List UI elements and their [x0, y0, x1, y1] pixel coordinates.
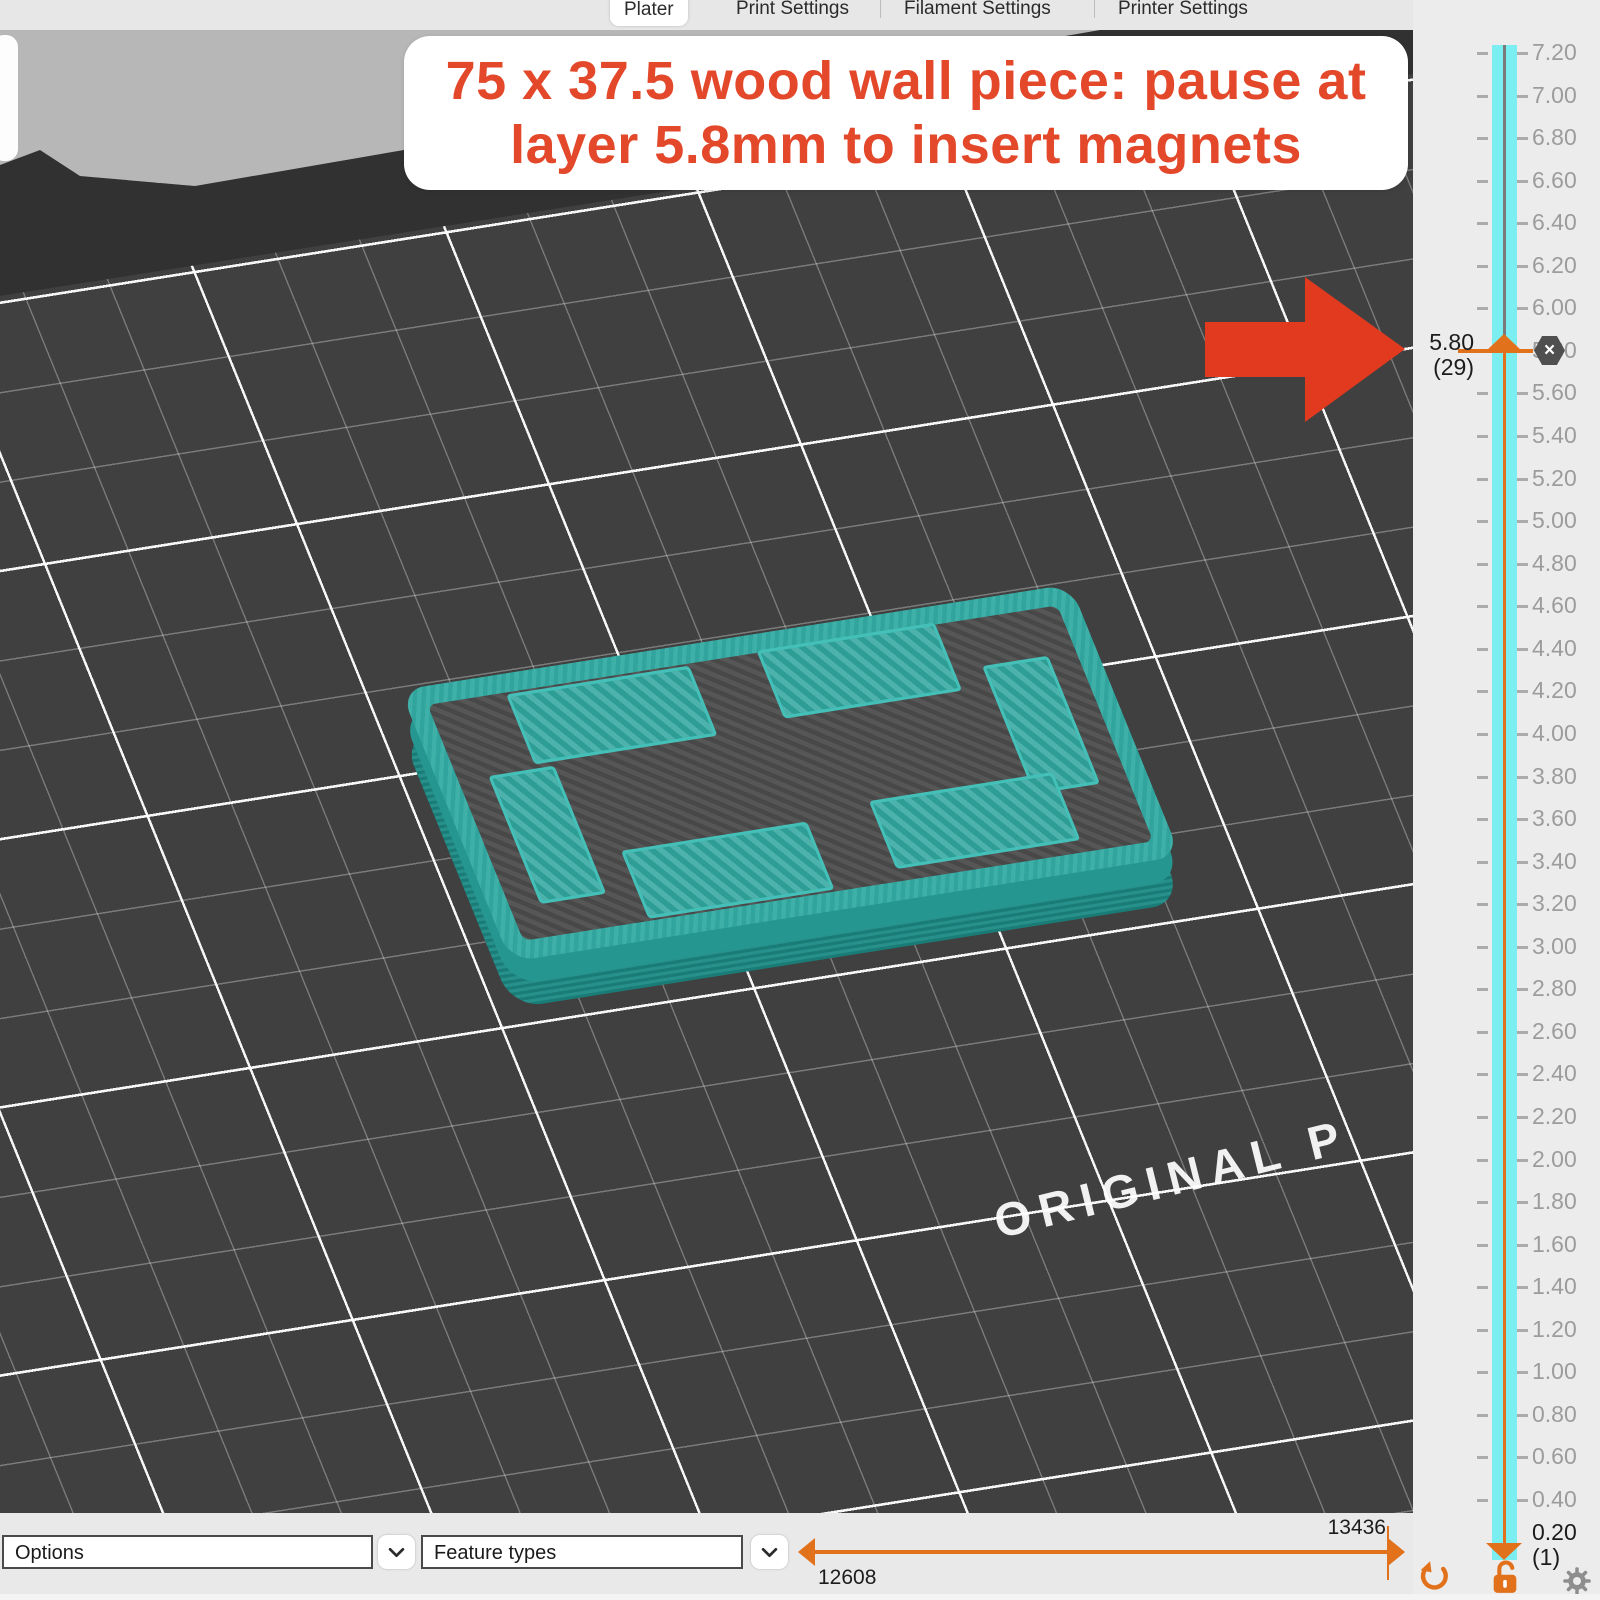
- lower-handle-layer-index: (1): [1532, 1544, 1560, 1571]
- settings-tabbar: Plater Print Settings Filament Settings …: [0, 0, 1413, 30]
- move-slider-position-tick: [1387, 1526, 1389, 1580]
- tab-printer-settings[interactable]: Printer Settings: [1104, 0, 1262, 26]
- annotation-line-2: layer 5.8mm to insert magnets: [404, 113, 1408, 177]
- annotation-arrow-icon: [1205, 277, 1405, 423]
- left-toolbar-fragment: [0, 35, 18, 161]
- layer-slider-upper-range: [1503, 45, 1506, 351]
- chevron-down-icon: [761, 1547, 778, 1558]
- upper-handle-layer-index: (29): [1433, 354, 1474, 381]
- move-slider-left-arrow[interactable]: [798, 1538, 815, 1566]
- lower-handle[interactable]: [1486, 1543, 1522, 1560]
- feature-types-combo[interactable]: Feature types: [421, 1535, 743, 1569]
- magnet-pocket: [757, 623, 963, 719]
- gear-icon[interactable]: [1562, 1566, 1592, 1596]
- annotation-banner: 75 x 37.5 wood wall piece: pause at laye…: [404, 36, 1408, 190]
- lower-handle-value: 0.20: [1532, 1519, 1577, 1546]
- tab-filament-settings[interactable]: Filament Settings: [890, 0, 1065, 26]
- move-slider-max-label: 13436: [1328, 1516, 1386, 1540]
- unlock-icon[interactable]: [1490, 1560, 1520, 1594]
- upper-handle[interactable]: [1486, 334, 1522, 351]
- magnet-pocket: [621, 822, 835, 919]
- tab-separator: [1094, 0, 1095, 18]
- undo-icon[interactable]: [1418, 1561, 1450, 1593]
- move-slider-right-arrow[interactable]: [1388, 1538, 1405, 1566]
- layer-slider-selected-range: [1503, 351, 1506, 1548]
- chevron-down-icon: [388, 1547, 405, 1558]
- options-dropdown-button[interactable]: [378, 1535, 415, 1569]
- move-slider-track[interactable]: [810, 1550, 1390, 1554]
- upper-handle-value: 5.80: [1429, 329, 1474, 356]
- magnet-pocket: [488, 766, 606, 904]
- bed-viewport[interactable]: ORIGINAL P 75 x 37.5 wood wall p: [0, 30, 1413, 1513]
- magnet-pocket: [869, 772, 1081, 869]
- window-bottom-strip: [0, 1594, 1600, 1600]
- magnet-pocket: [506, 666, 717, 765]
- bottom-bar: Options Feature types 13436 12608: [0, 1513, 1413, 1600]
- move-slider-current-label: 12608: [818, 1566, 876, 1590]
- slicer-window: ORIGINAL P 75 x 37.5 wood wall p: [0, 0, 1600, 1600]
- tab-print-settings[interactable]: Print Settings: [722, 0, 863, 26]
- layer-slider-panel: 7.207.006.806.606.406.206.005.805.605.40…: [1413, 0, 1600, 1600]
- options-combo[interactable]: Options: [2, 1535, 373, 1569]
- tab-plater[interactable]: Plater: [610, 0, 688, 26]
- annotation-line-1: 75 x 37.5 wood wall piece: pause at: [404, 49, 1408, 113]
- tab-separator: [880, 0, 881, 18]
- feature-types-dropdown-button[interactable]: [751, 1535, 788, 1569]
